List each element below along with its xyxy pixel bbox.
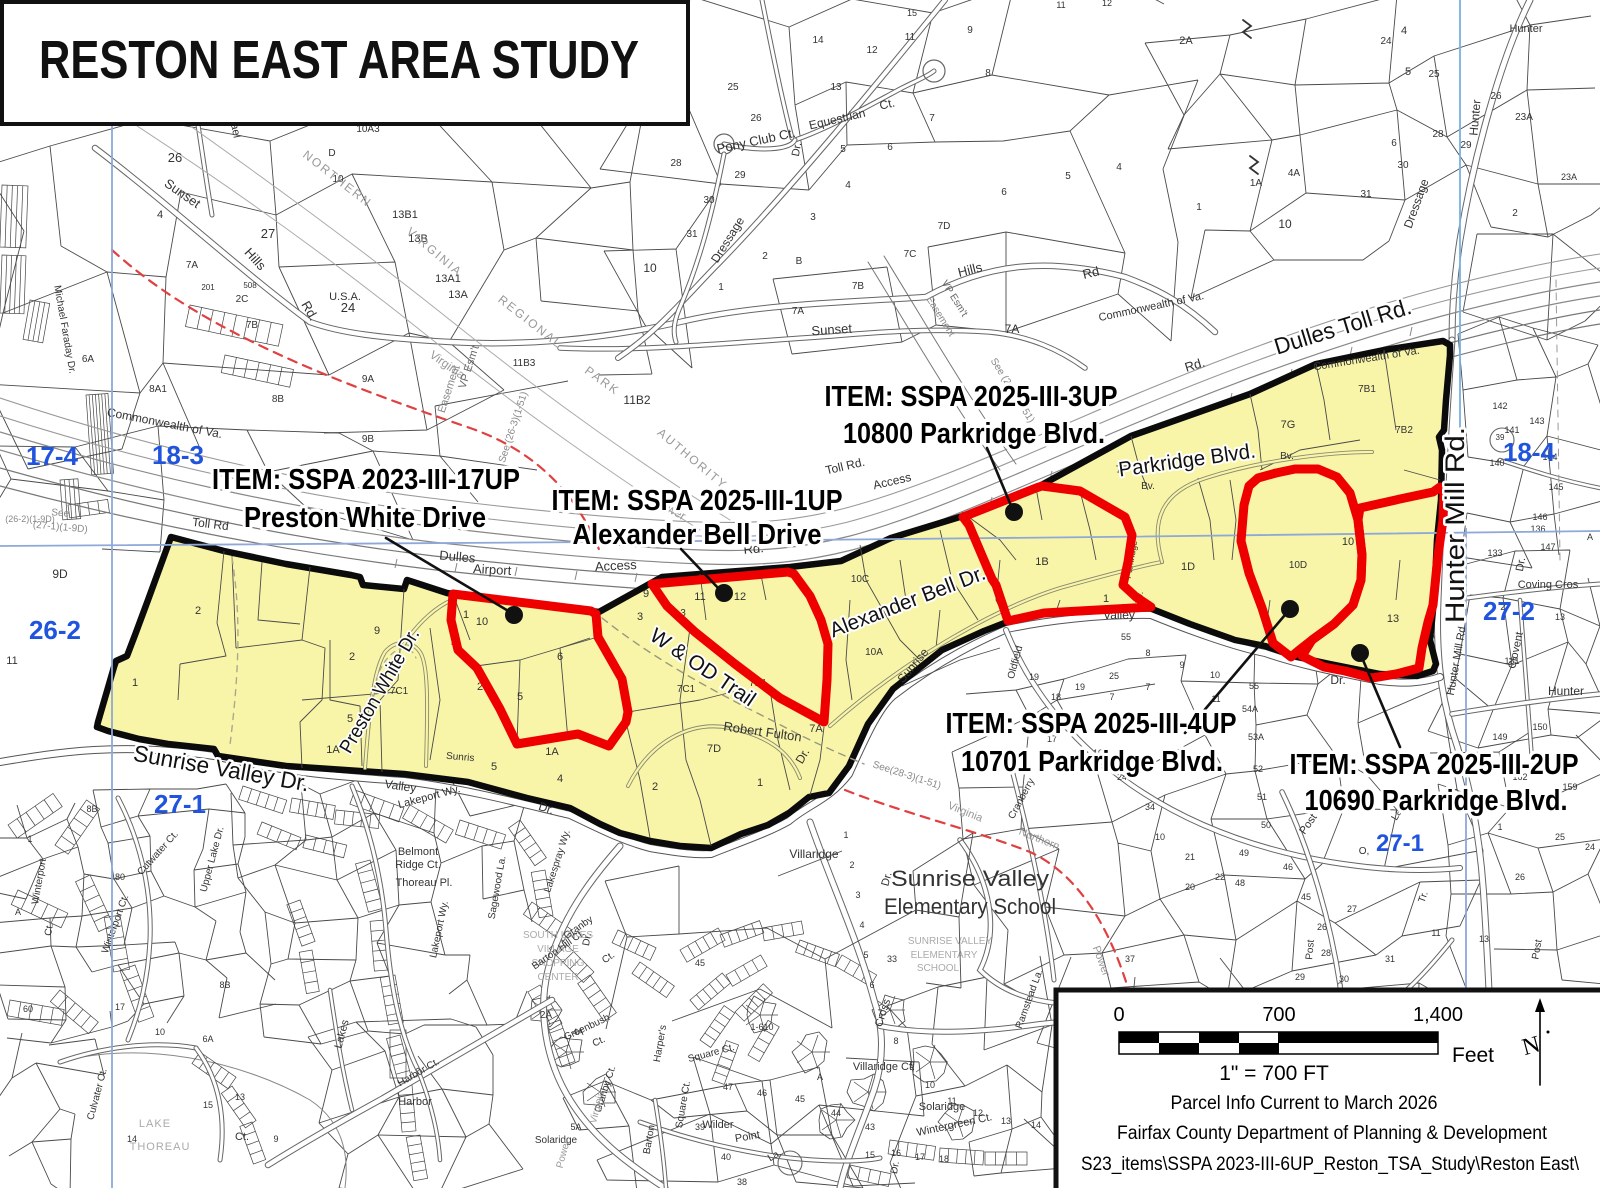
svg-text:13: 13	[830, 82, 842, 93]
svg-text:8: 8	[1145, 648, 1150, 658]
svg-text:9: 9	[967, 25, 973, 36]
svg-text:5: 5	[1405, 66, 1411, 78]
svg-text:Ct.: Ct.	[43, 922, 56, 936]
svg-text:13: 13	[1387, 613, 1399, 625]
svg-text:Villaridge Ct.: Villaridge Ct.	[853, 1061, 915, 1073]
svg-text:22: 22	[1215, 872, 1225, 882]
svg-text:13: 13	[1001, 1116, 1011, 1126]
svg-text:26: 26	[1317, 922, 1327, 932]
svg-text:4: 4	[845, 180, 851, 191]
svg-text:Dr.: Dr.	[889, 1160, 902, 1174]
svg-text:4: 4	[1116, 162, 1122, 173]
svg-text:26: 26	[1515, 872, 1525, 882]
svg-text:RESTON EAST AREA STUDY: RESTON EAST AREA STUDY	[39, 30, 639, 90]
svg-text:1: 1	[1103, 593, 1109, 605]
svg-text:Bv.: Bv.	[1280, 451, 1294, 462]
svg-text:Airport: Airport	[473, 561, 512, 578]
svg-text:5: 5	[840, 144, 846, 155]
svg-text:26-2: 26-2	[29, 615, 81, 645]
svg-text:10690 Parkridge Blvd.: 10690 Parkridge Blvd.	[1305, 785, 1568, 817]
svg-text:19: 19	[1029, 672, 1039, 682]
svg-text:2: 2	[349, 651, 355, 663]
svg-text:19: 19	[1075, 682, 1085, 692]
svg-text:17: 17	[915, 1152, 925, 1162]
svg-text:10C: 10C	[851, 574, 869, 585]
svg-text:2A: 2A	[1179, 35, 1193, 47]
svg-text:Villaridge: Villaridge	[789, 847, 838, 861]
svg-text:Parcel Info Current to March 2: Parcel Info Current to March 2026	[1171, 1093, 1438, 1114]
svg-text:7: 7	[929, 113, 935, 124]
svg-text:29: 29	[1460, 140, 1472, 151]
svg-text:9: 9	[374, 625, 380, 637]
svg-text:25: 25	[1109, 671, 1119, 681]
svg-text:48: 48	[1235, 878, 1245, 888]
svg-text:1D: 1D	[1181, 561, 1195, 573]
svg-text:13: 13	[1479, 934, 1489, 944]
svg-text:7B2: 7B2	[1395, 425, 1413, 436]
svg-text:17: 17	[115, 1002, 125, 1012]
svg-text:1" = 700 FT: 1" = 700 FT	[1219, 1062, 1329, 1085]
svg-text:142: 142	[1492, 401, 1507, 411]
svg-text:ITEM: SSPA 2023-III-17UP: ITEM: SSPA 2023-III-17UP	[212, 464, 520, 496]
svg-text:31: 31	[1360, 189, 1372, 200]
svg-text:CENTER: CENTER	[537, 972, 578, 983]
svg-text:33: 33	[887, 954, 897, 964]
svg-text:52: 52	[1253, 764, 1263, 774]
svg-text:Preston White Drive: Preston White Drive	[244, 502, 486, 534]
svg-text:25: 25	[727, 82, 739, 93]
svg-text:B: B	[796, 256, 803, 267]
svg-text:24: 24	[1585, 842, 1595, 852]
svg-text:11: 11	[1056, 0, 1065, 10]
svg-text:6: 6	[887, 142, 893, 153]
svg-text:10: 10	[155, 1027, 165, 1037]
svg-text:7: 7	[1145, 682, 1150, 692]
svg-text:10: 10	[925, 1080, 935, 1090]
svg-text:25: 25	[1428, 69, 1440, 80]
svg-text:27: 27	[1347, 904, 1357, 914]
svg-text:201: 201	[201, 283, 215, 292]
svg-text:5A: 5A	[570, 1122, 581, 1132]
svg-text:SUNRISE VALLEY: SUNRISE VALLEY	[908, 936, 993, 947]
svg-text:37: 37	[1125, 954, 1135, 964]
svg-text:6: 6	[557, 651, 563, 663]
svg-text:27: 27	[261, 226, 275, 241]
svg-text:11: 11	[694, 591, 705, 603]
svg-text:1: 1	[132, 677, 138, 689]
svg-text:ITEM: SSPA 2025-III-1UP: ITEM: SSPA 2025-III-1UP	[552, 485, 843, 517]
svg-text:(26-2)(1-9D): (26-2)(1-9D)	[5, 514, 55, 524]
svg-text:Feet: Feet	[1452, 1044, 1494, 1067]
svg-text:46: 46	[757, 1088, 767, 1098]
svg-text:Ridge Ct.: Ridge Ct.	[395, 859, 441, 871]
svg-text:46: 46	[1283, 862, 1293, 872]
svg-text:2C: 2C	[236, 294, 249, 305]
svg-text:45: 45	[695, 958, 705, 968]
svg-text:50: 50	[1261, 820, 1271, 830]
svg-text:14: 14	[127, 1134, 137, 1144]
svg-text:7: 7	[877, 1008, 882, 1018]
svg-text:Coving Cros: Coving Cros	[1518, 579, 1579, 591]
svg-text:6A: 6A	[202, 1034, 213, 1044]
svg-text:1: 1	[1497, 822, 1502, 832]
svg-text:14: 14	[812, 35, 824, 46]
svg-text:THOREAU: THOREAU	[130, 1141, 191, 1153]
svg-text:Hunter: Hunter	[1548, 684, 1584, 698]
svg-text:10: 10	[1210, 670, 1220, 680]
svg-text:31: 31	[686, 229, 698, 240]
svg-text:2: 2	[652, 781, 658, 793]
svg-text:Access: Access	[594, 557, 637, 574]
svg-text:ITEM: SSPA 2025-III-3UP: ITEM: SSPA 2025-III-3UP	[825, 381, 1118, 413]
svg-text:10: 10	[643, 261, 657, 275]
svg-text:Fairfax County Department of P: Fairfax County Department of Planning & …	[1117, 1123, 1548, 1144]
svg-text:47: 47	[723, 1082, 733, 1092]
svg-text:A: A	[1587, 532, 1593, 542]
svg-text:ITEM: SSPA 2025-III-2UP: ITEM: SSPA 2025-III-2UP	[1290, 749, 1579, 781]
svg-text:27-1: 27-1	[154, 789, 206, 819]
svg-text:ELEMENTARY: ELEMENTARY	[911, 950, 978, 961]
svg-text:15: 15	[865, 1150, 875, 1160]
svg-text:27-1: 27-1	[1376, 830, 1424, 857]
svg-text:51: 51	[1257, 792, 1267, 802]
svg-text:2: 2	[195, 605, 201, 617]
svg-text:7B: 7B	[246, 320, 259, 331]
svg-text:13: 13	[1555, 612, 1565, 622]
svg-text:23A: 23A	[1515, 112, 1533, 123]
svg-text:D: D	[328, 148, 335, 159]
svg-text:Bv.: Bv.	[1141, 481, 1155, 492]
svg-text:44: 44	[831, 1108, 841, 1118]
svg-text:8A1: 8A1	[149, 384, 167, 395]
svg-text:Dr.: Dr.	[790, 142, 804, 158]
svg-text:13B1: 13B1	[392, 209, 418, 221]
svg-text:7C: 7C	[904, 249, 917, 260]
svg-text:60: 60	[23, 1004, 33, 1014]
svg-text:147: 147	[1540, 542, 1555, 552]
svg-text:508: 508	[243, 281, 257, 290]
svg-text:45: 45	[1301, 892, 1311, 902]
svg-text:20: 20	[1185, 882, 1195, 892]
svg-text:18: 18	[1051, 692, 1061, 702]
svg-text:1,400: 1,400	[1413, 1004, 1463, 1026]
svg-text:9A: 9A	[362, 374, 375, 385]
svg-text:3: 3	[637, 611, 643, 623]
svg-text:10D: 10D	[1289, 560, 1307, 571]
svg-text:1A: 1A	[545, 746, 559, 758]
svg-text:11B3: 11B3	[513, 358, 536, 369]
svg-text:10800 Parkridge Blvd.: 10800 Parkridge Blvd.	[843, 418, 1105, 450]
svg-text:28: 28	[670, 158, 682, 169]
svg-text:34: 34	[1145, 802, 1155, 812]
svg-text:Belmont: Belmont	[398, 846, 438, 858]
svg-text:28: 28	[1432, 129, 1444, 140]
svg-text:145: 145	[1548, 482, 1563, 492]
svg-text:1-610: 1-610	[750, 1022, 773, 1032]
svg-text:1B: 1B	[1035, 556, 1048, 568]
svg-text:S23_items\SSPA 2023-III-6UP_Re: S23_items\SSPA 2023-III-6UP_Reston_TSA_S…	[1081, 1154, 1580, 1175]
svg-text:Solaridge: Solaridge	[919, 1101, 965, 1113]
svg-text:9B: 9B	[362, 434, 375, 445]
svg-text:7A: 7A	[186, 260, 199, 271]
svg-text:141: 141	[1504, 425, 1519, 435]
svg-text:6: 6	[1391, 138, 1397, 149]
svg-text:10701 Parkridge Blvd.: 10701 Parkridge Blvd.	[961, 746, 1223, 778]
svg-text:5: 5	[863, 950, 868, 960]
svg-text:150: 150	[1532, 722, 1547, 732]
svg-text:29: 29	[734, 170, 746, 181]
svg-text:12: 12	[973, 1108, 983, 1118]
svg-text:30: 30	[1397, 160, 1409, 171]
svg-text:4: 4	[859, 920, 864, 930]
svg-text:0: 0	[1113, 1004, 1124, 1026]
svg-text:A: A	[15, 907, 21, 917]
svg-text:10: 10	[476, 616, 488, 628]
svg-text:133: 133	[1487, 548, 1502, 558]
svg-text:7: 7	[1109, 692, 1114, 702]
svg-text:54A: 54A	[1242, 704, 1258, 714]
svg-text:4: 4	[157, 209, 163, 221]
svg-text:131: 131	[1504, 656, 1519, 666]
svg-text:7B: 7B	[852, 281, 865, 292]
svg-text:17-4: 17-4	[26, 441, 79, 471]
svg-text:7A: 7A	[792, 306, 805, 317]
svg-text:15: 15	[907, 8, 917, 18]
svg-text:Elementary School: Elementary School	[884, 894, 1056, 919]
svg-text:Alexander Bell Drive: Alexander Bell Drive	[573, 519, 822, 551]
svg-text:27-2: 27-2	[1483, 596, 1535, 626]
svg-text:6: 6	[869, 980, 874, 990]
svg-text:9: 9	[273, 1134, 278, 1144]
svg-text:7D: 7D	[707, 743, 721, 755]
svg-text:80: 80	[115, 872, 125, 882]
svg-text:7A: 7A	[1005, 322, 1020, 336]
svg-text:6: 6	[1001, 187, 1007, 198]
svg-text:146: 146	[1532, 512, 1547, 522]
svg-text:18: 18	[939, 1154, 949, 1164]
svg-text:2A: 2A	[540, 1010, 553, 1021]
svg-text:4A: 4A	[1288, 168, 1301, 179]
svg-text:8: 8	[985, 68, 991, 79]
svg-text:12: 12	[734, 591, 746, 603]
svg-text:55: 55	[1121, 632, 1131, 642]
svg-text:11B2: 11B2	[623, 393, 650, 407]
svg-text:16: 16	[891, 1148, 901, 1158]
svg-text:18-4: 18-4	[1503, 437, 1556, 467]
svg-text:15: 15	[203, 1100, 213, 1110]
svg-text:11: 11	[6, 655, 17, 667]
svg-text:45: 45	[795, 1094, 805, 1104]
svg-text:23A: 23A	[1561, 172, 1577, 182]
svg-text:Ct.: Ct.	[235, 1131, 249, 1143]
svg-text:Dulles: Dulles	[439, 547, 477, 565]
svg-text:26: 26	[1490, 91, 1502, 102]
svg-text:8B: 8B	[272, 394, 285, 405]
svg-text:10A: 10A	[865, 647, 883, 658]
svg-text:LAKE: LAKE	[139, 1118, 171, 1130]
svg-text:40: 40	[721, 1152, 731, 1162]
svg-text:ITEM: SSPA 2025-III-4UP: ITEM: SSPA 2025-III-4UP	[946, 708, 1237, 740]
svg-text:8: 8	[893, 1036, 898, 1046]
svg-text:9: 9	[643, 588, 649, 600]
svg-text:1: 1	[718, 282, 724, 293]
svg-text:5: 5	[517, 691, 523, 703]
svg-text:10: 10	[1278, 217, 1292, 231]
svg-text:11: 11	[905, 32, 916, 43]
svg-text:3: 3	[810, 212, 816, 223]
svg-text:2: 2	[762, 251, 768, 262]
svg-text:Harbor: Harbor	[398, 1096, 432, 1108]
svg-text:18-3: 18-3	[152, 440, 204, 470]
svg-text:30: 30	[1339, 974, 1349, 984]
svg-text:Hunter: Hunter	[1509, 23, 1542, 35]
svg-text:1: 1	[1196, 202, 1202, 213]
svg-text:43: 43	[865, 1122, 875, 1132]
svg-text:SCHOOL: SCHOOL	[917, 963, 960, 974]
svg-text:700: 700	[1262, 1004, 1295, 1026]
svg-text:11: 11	[1431, 928, 1440, 938]
svg-text:7C1: 7C1	[677, 684, 696, 695]
svg-text:49: 49	[1239, 848, 1249, 858]
svg-text:Dr.: Dr.	[1514, 557, 1528, 573]
svg-text:53A: 53A	[1248, 732, 1264, 742]
svg-text:10: 10	[1342, 536, 1354, 548]
svg-text:Wilder: Wilder	[702, 1119, 734, 1131]
svg-text:13A: 13A	[448, 289, 468, 301]
svg-text:26: 26	[168, 150, 182, 165]
svg-text:6A: 6A	[82, 354, 95, 365]
svg-text:2: 2	[1512, 208, 1518, 219]
svg-text:21: 21	[1185, 852, 1195, 862]
svg-text:Thoreau Pl.: Thoreau Pl.	[396, 877, 453, 889]
svg-text:13: 13	[235, 1092, 245, 1102]
svg-text:5: 5	[1065, 171, 1071, 182]
svg-text:12: 12	[1102, 0, 1112, 8]
svg-text:1A: 1A	[1250, 178, 1263, 189]
svg-text:8B: 8B	[219, 980, 230, 990]
svg-text:31: 31	[1385, 954, 1395, 964]
svg-text:9: 9	[909, 1060, 914, 1070]
svg-text:3: 3	[855, 890, 860, 900]
svg-text:24: 24	[1380, 36, 1392, 47]
svg-text:4: 4	[557, 773, 563, 785]
svg-text:28: 28	[1321, 948, 1331, 958]
svg-text:1: 1	[757, 777, 763, 789]
svg-text:7G: 7G	[1281, 419, 1296, 431]
svg-text:O,: O,	[1359, 846, 1370, 857]
svg-text:38: 38	[737, 1177, 747, 1187]
svg-text:7B1: 7B1	[1358, 384, 1376, 395]
svg-text:2: 2	[849, 860, 854, 870]
svg-text:5: 5	[491, 761, 497, 773]
svg-text:Hunter Mill Rd.: Hunter Mill Rd.	[1440, 427, 1470, 623]
svg-text:1: 1	[843, 830, 848, 840]
svg-text:Post: Post	[1304, 939, 1317, 960]
svg-text:U.S.A.: U.S.A.	[329, 291, 361, 303]
svg-text:55: 55	[1249, 681, 1259, 691]
svg-text:10: 10	[1155, 832, 1165, 842]
svg-text:Sunset: Sunset	[811, 321, 853, 339]
svg-text:143: 143	[1529, 416, 1544, 426]
svg-text:7D: 7D	[938, 221, 951, 232]
svg-text:8B: 8B	[86, 804, 97, 814]
svg-text:14: 14	[1031, 1120, 1041, 1130]
svg-text:9: 9	[1179, 660, 1184, 670]
svg-text:12: 12	[866, 45, 878, 56]
svg-text:149: 149	[1492, 732, 1507, 742]
svg-text:30: 30	[703, 195, 715, 206]
svg-text:1: 1	[27, 834, 32, 844]
svg-text:26: 26	[750, 113, 762, 124]
svg-text:29: 29	[1295, 972, 1305, 982]
svg-text:A: A	[817, 1072, 823, 1082]
svg-text:25: 25	[1555, 832, 1565, 842]
svg-text:9D: 9D	[52, 567, 68, 581]
svg-text:4: 4	[1401, 25, 1407, 37]
svg-text:1: 1	[463, 609, 469, 621]
svg-text:39: 39	[695, 1122, 705, 1132]
svg-text:11: 11	[947, 1096, 956, 1106]
